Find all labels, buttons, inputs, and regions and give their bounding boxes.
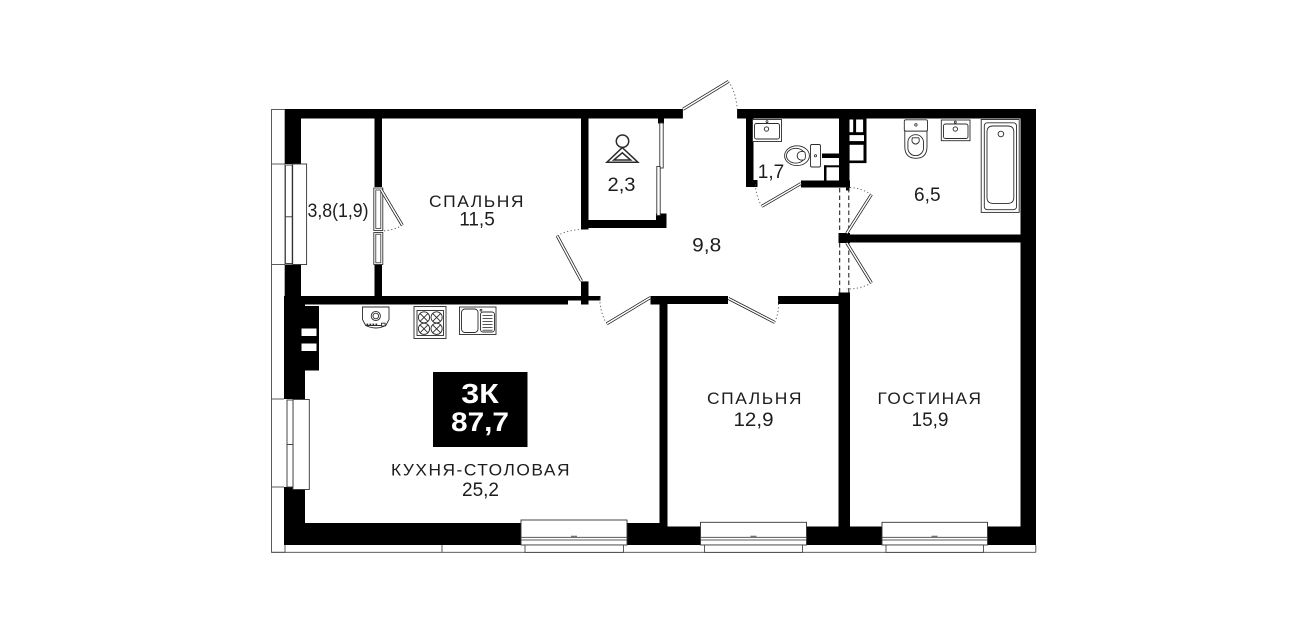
svg-text:СПАЛЬНЯ: СПАЛЬНЯ: [429, 192, 525, 211]
svg-text:25,2: 25,2: [462, 480, 499, 501]
svg-text:3,8(1,9): 3,8(1,9): [308, 201, 369, 222]
svg-text:КУХНЯ-СТОЛОВАЯ: КУХНЯ-СТОЛОВАЯ: [391, 461, 571, 480]
svg-text:2,3: 2,3: [608, 175, 636, 196]
svg-text:СПАЛЬНЯ: СПАЛЬНЯ: [707, 389, 803, 408]
svg-text:ГОСТИНАЯ: ГОСТИНАЯ: [878, 389, 983, 408]
svg-text:12,9: 12,9: [734, 410, 774, 431]
svg-text:6,5: 6,5: [914, 185, 941, 206]
svg-text:87,7: 87,7: [451, 407, 509, 437]
svg-text:9,8: 9,8: [692, 236, 721, 257]
svg-text:1,7: 1,7: [758, 162, 784, 183]
svg-text:15,9: 15,9: [912, 410, 949, 431]
svg-text:3К: 3К: [461, 378, 500, 409]
svg-text:11,5: 11,5: [459, 210, 495, 231]
